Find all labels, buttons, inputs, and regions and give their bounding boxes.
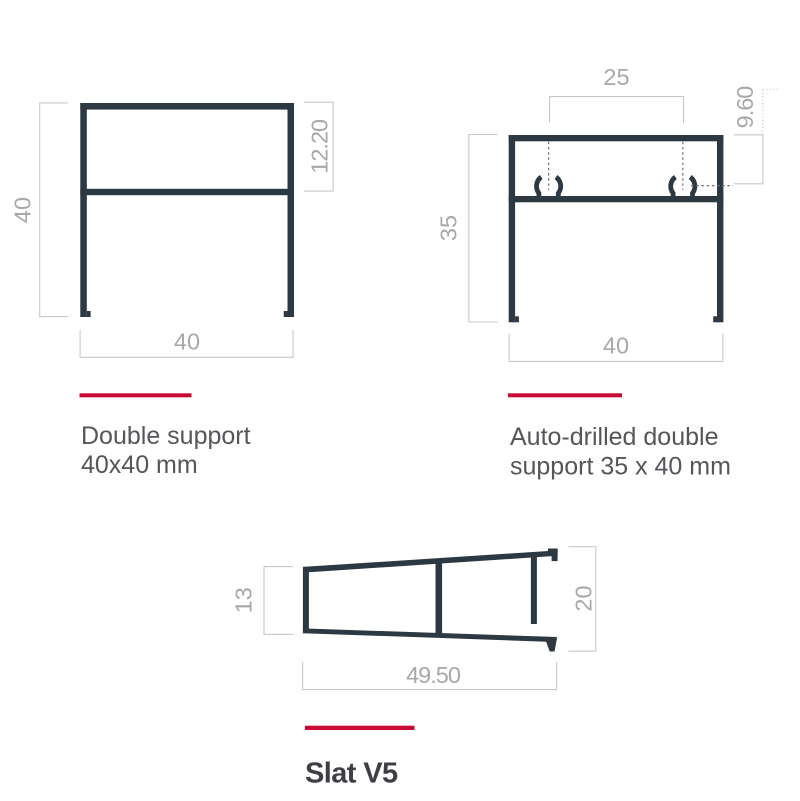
svg-text:Auto-drilled double: Auto-drilled double	[510, 423, 718, 451]
svg-text:49.50: 49.50	[406, 662, 461, 688]
svg-text:40: 40	[10, 197, 36, 223]
svg-text:35: 35	[436, 215, 462, 241]
svg-text:25: 25	[603, 64, 629, 90]
svg-text:20: 20	[570, 585, 596, 611]
svg-text:Double support: Double support	[81, 422, 251, 450]
svg-text:40: 40	[603, 333, 629, 359]
svg-text:9.60: 9.60	[732, 86, 758, 129]
svg-text:40x40 mm: 40x40 mm	[81, 451, 198, 479]
svg-text:13: 13	[231, 587, 257, 613]
svg-text:Slat V5: Slat V5	[305, 758, 398, 790]
svg-text:support 35 x 40 mm: support 35 x 40 mm	[510, 453, 731, 481]
svg-text:40: 40	[174, 329, 200, 355]
svg-text:12.20: 12.20	[307, 119, 333, 174]
